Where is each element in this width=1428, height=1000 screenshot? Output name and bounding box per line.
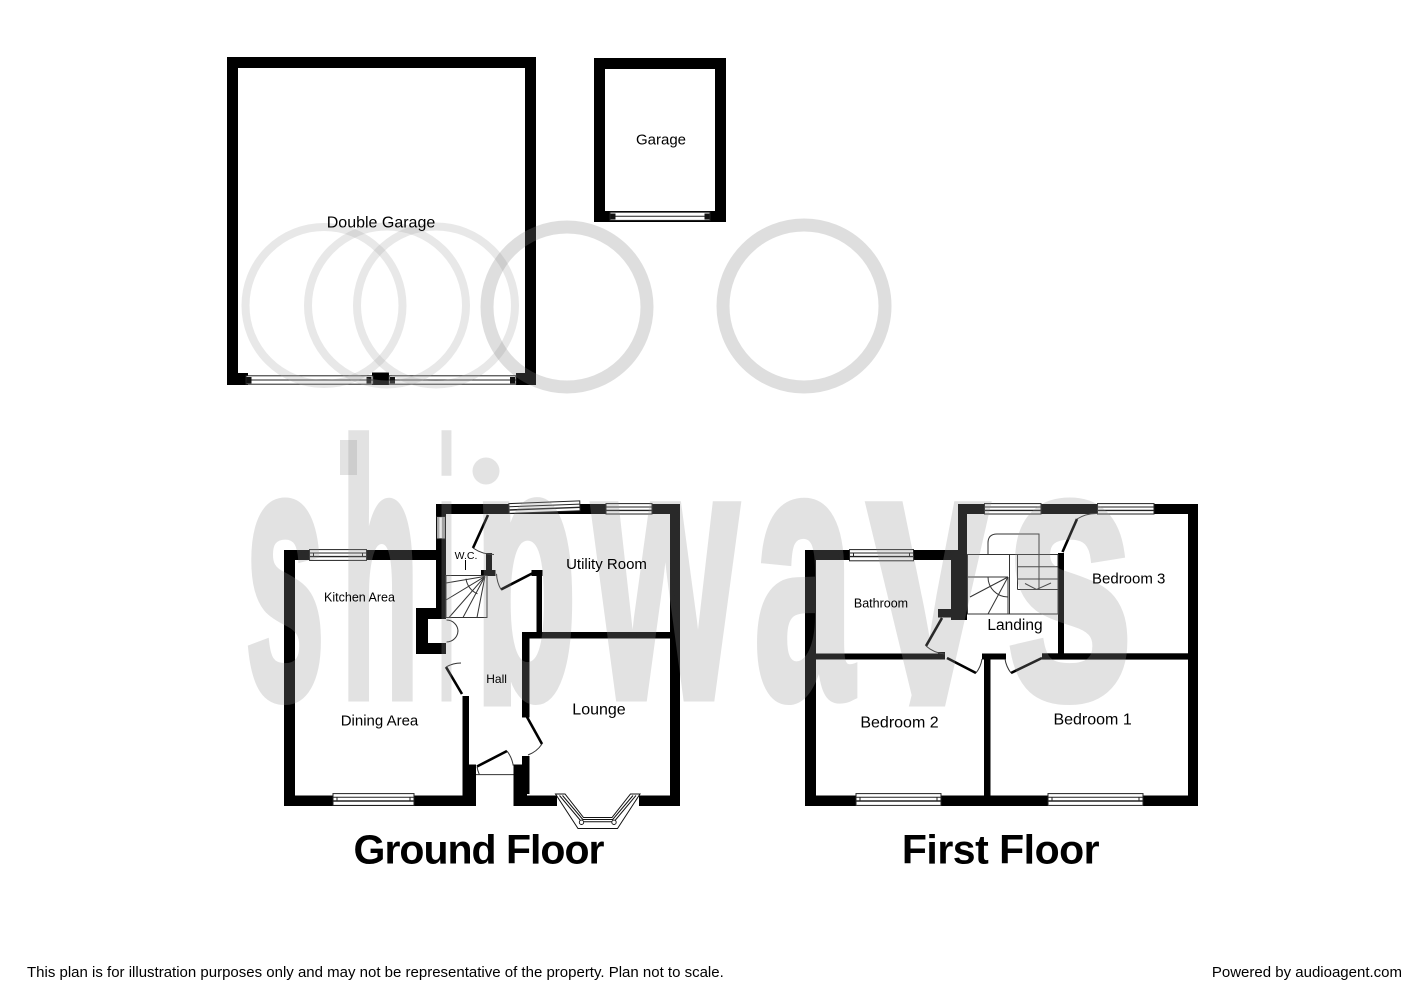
svg-text:Dining Area: Dining Area bbox=[341, 713, 419, 730]
svg-text:Kitchen Area: Kitchen Area bbox=[324, 591, 395, 605]
svg-text:Lounge: Lounge bbox=[572, 702, 625, 719]
svg-text:Ground Floor: Ground Floor bbox=[354, 827, 605, 873]
svg-text:Hall: Hall bbox=[486, 672, 507, 686]
svg-text:Powered by audioagent.com: Powered by audioagent.com bbox=[1212, 964, 1402, 981]
svg-text:Bedroom 3: Bedroom 3 bbox=[1092, 571, 1165, 588]
svg-text:Bedroom 2: Bedroom 2 bbox=[860, 715, 938, 732]
svg-text:Garage: Garage bbox=[636, 132, 686, 149]
svg-text:This plan is for illustration: This plan is for illustration purposes o… bbox=[27, 964, 724, 981]
svg-text:Double Garage: Double Garage bbox=[327, 215, 436, 232]
svg-text:Landing: Landing bbox=[987, 617, 1042, 634]
svg-text:Bathroom: Bathroom bbox=[854, 597, 908, 611]
svg-text:Utility Room: Utility Room bbox=[566, 556, 647, 573]
svg-text:Bedroom 1: Bedroom 1 bbox=[1053, 712, 1131, 729]
svg-text:First Floor: First Floor bbox=[902, 827, 1100, 873]
